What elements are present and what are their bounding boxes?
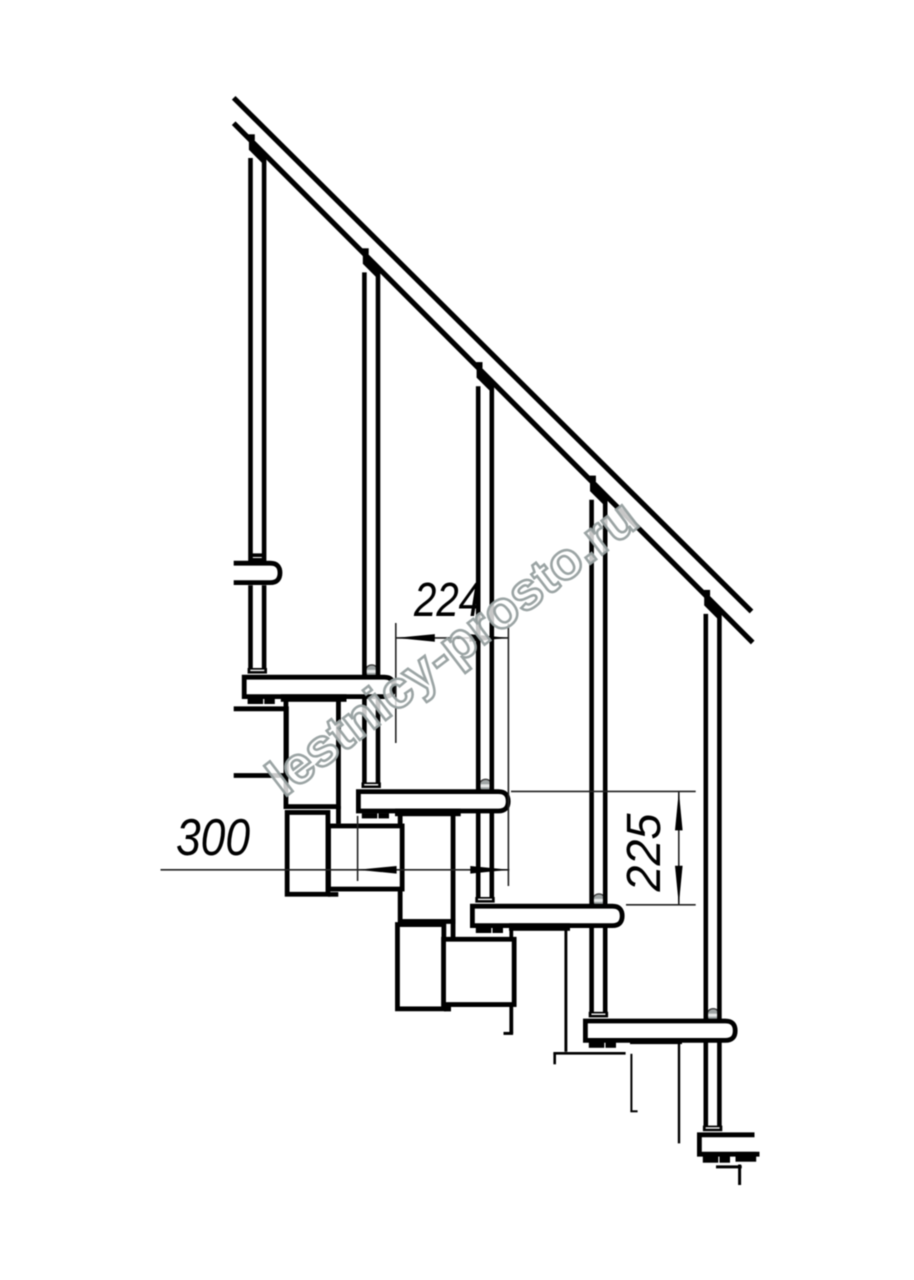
svg-text:225: 225 <box>618 813 671 892</box>
svg-text:300: 300 <box>176 809 250 867</box>
